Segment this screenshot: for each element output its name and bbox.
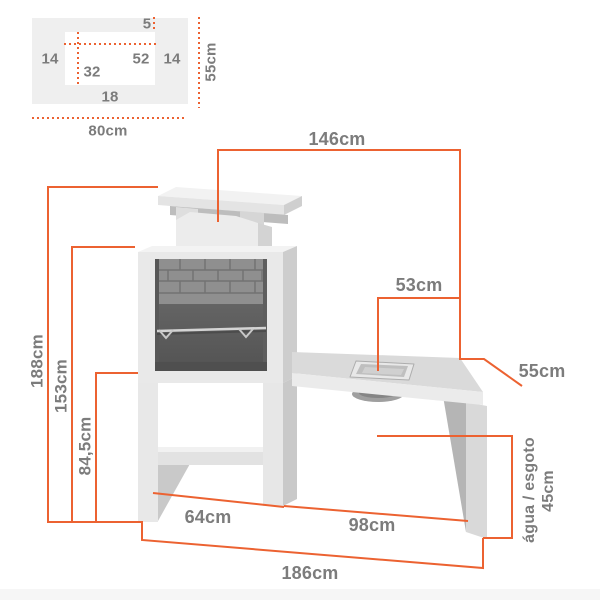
dim-line-hearth-height <box>72 247 135 521</box>
dim-line-utility-height <box>377 436 512 538</box>
inset-depth-label: 55cm <box>204 42 219 81</box>
stand-right-leg-side <box>283 376 297 506</box>
stand-left-leg <box>138 383 158 522</box>
overall-width-label: 146cm <box>308 130 365 148</box>
dim-line-overall-length <box>142 521 483 568</box>
firebox-opening <box>155 259 267 371</box>
sink-to-edge-label: 53cm <box>396 276 443 294</box>
hearth-height-label: 153cm <box>53 359 70 413</box>
inset-front-edge-label: 18 <box>101 90 118 105</box>
dim-line-worktop-height <box>96 373 138 521</box>
stand-shelf <box>158 452 270 465</box>
overall-height-label: 188cm <box>29 334 46 388</box>
utility-height-label: 45cm <box>541 470 557 512</box>
table-leg-front <box>466 402 487 539</box>
floor-strip <box>0 589 600 600</box>
sink <box>350 361 414 380</box>
table-leg-side <box>443 396 466 532</box>
overall-length-label: 186cm <box>281 564 338 582</box>
inset-wall-left-label: 14 <box>41 52 58 67</box>
stand-shelf-top <box>158 447 270 452</box>
inset-width-label: 80cm <box>88 124 127 139</box>
chimney-body-side <box>258 223 272 249</box>
stand-right-leg <box>263 383 283 506</box>
inset-opening-width-label: 52 <box>132 52 149 67</box>
diagram-canvas <box>0 0 600 600</box>
opening-right-jamb <box>263 259 267 371</box>
firebox-floor <box>155 362 267 371</box>
inset-inner-depth-label: 32 <box>83 65 100 80</box>
inset-wall-right-label: 14 <box>163 52 180 67</box>
firebox-top-face <box>138 246 297 252</box>
table-depth-label: 55cm <box>519 362 566 380</box>
worktop-height-label: 84,5cm <box>77 417 94 476</box>
inset-gap-top-label: 5 <box>143 17 152 32</box>
opening-left-jamb <box>155 259 159 371</box>
product-dimension-diagram: 146cm 53cm 55cm 188cm 153cm 84,5cm 64cm … <box>0 0 600 600</box>
base-width-label: 64cm <box>185 508 232 526</box>
table-span-label: 98cm <box>349 516 396 534</box>
utility-text-label: água / esgoto <box>522 437 538 543</box>
